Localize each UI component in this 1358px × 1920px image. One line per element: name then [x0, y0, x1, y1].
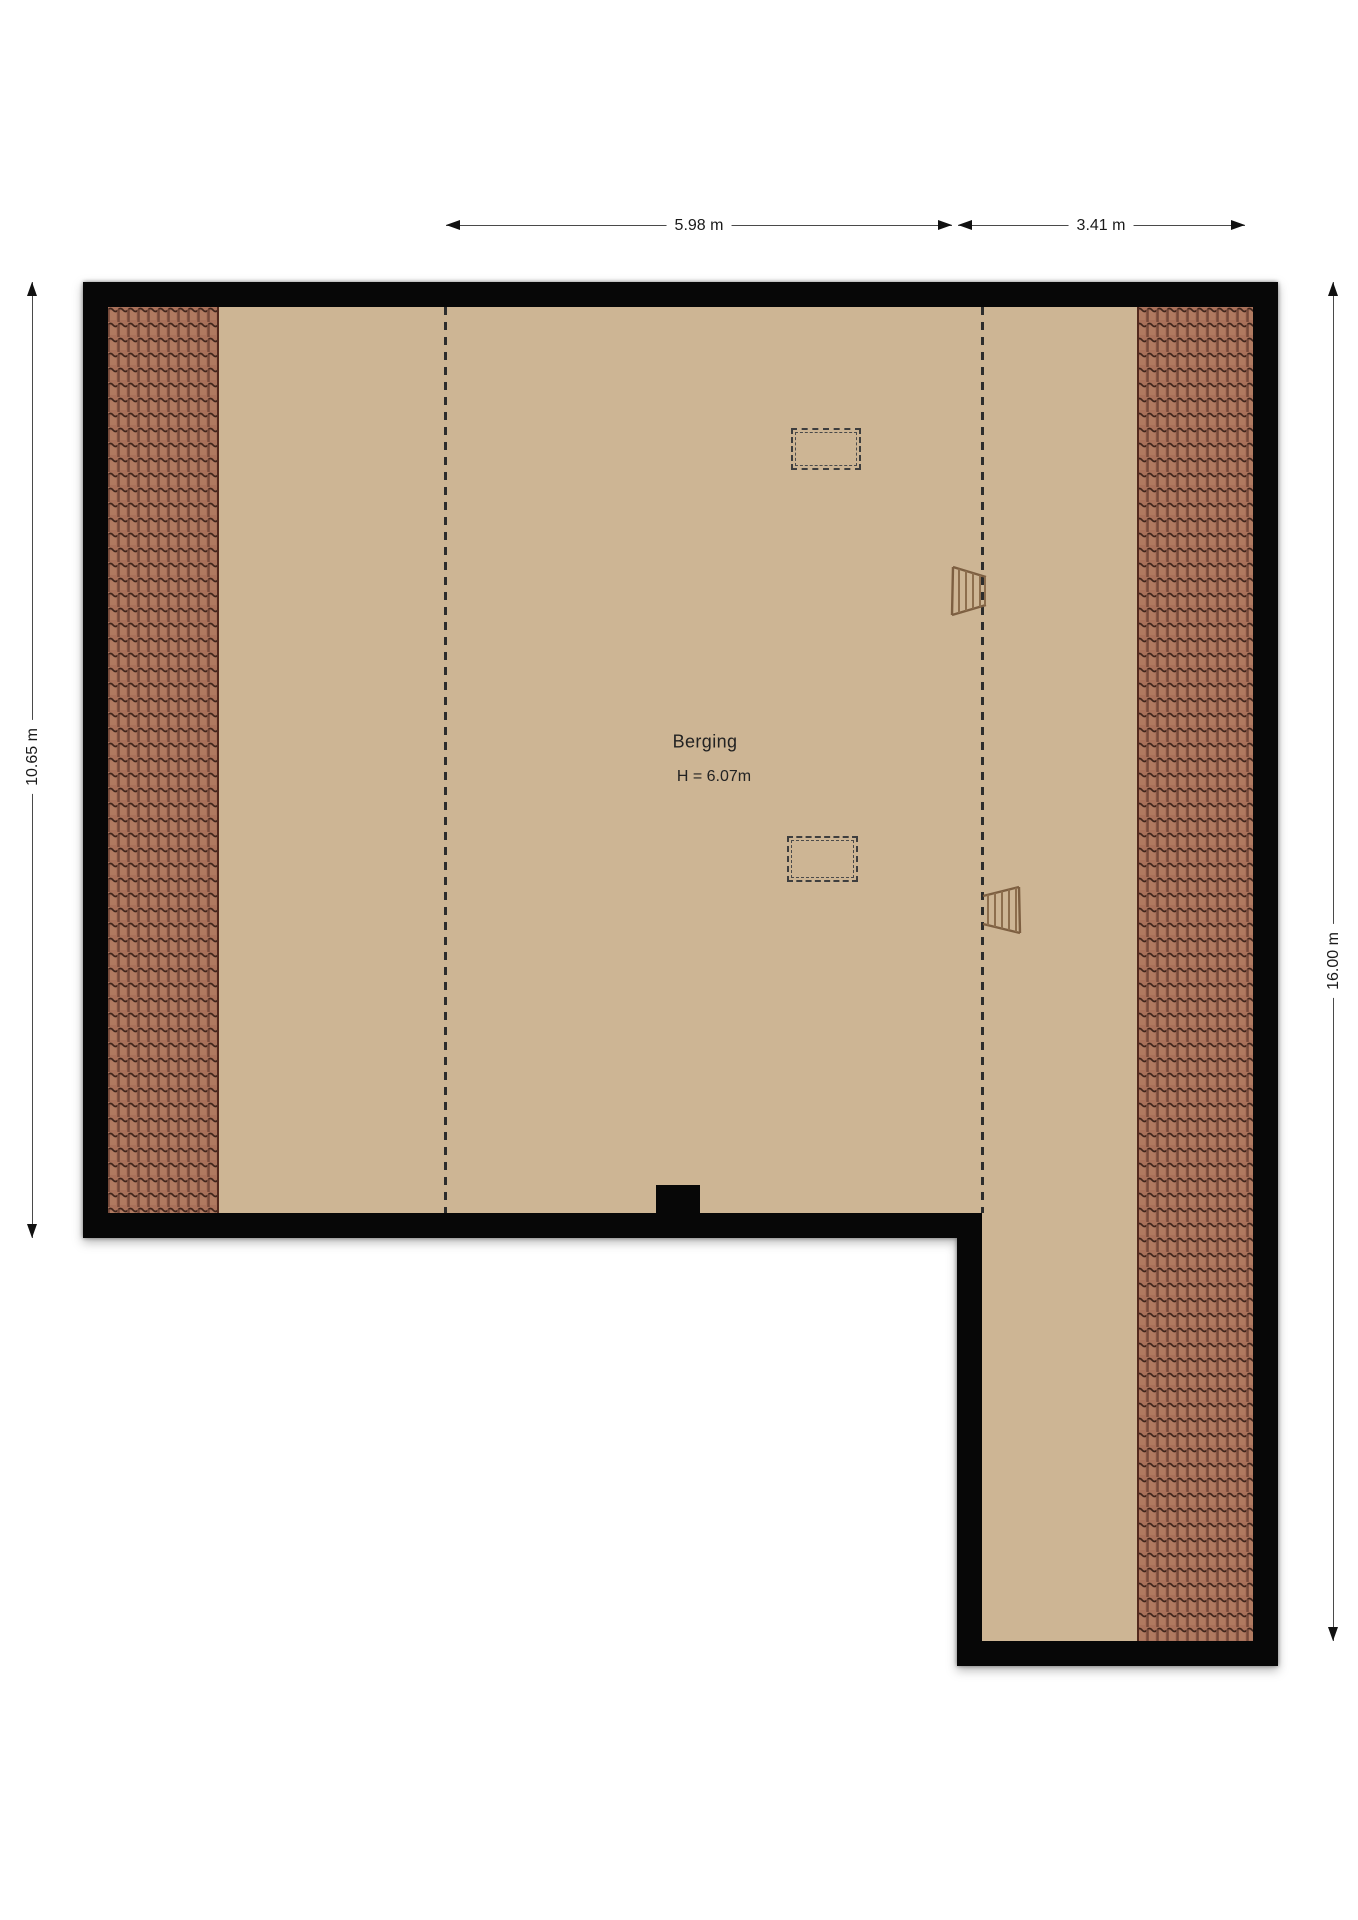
skylight-inner-outline: [791, 840, 854, 878]
skylight-inner-outline: [795, 432, 857, 466]
dimension-top-outer-label: 3.41 m: [1069, 216, 1134, 236]
loft-ladder-icon: [980, 884, 1022, 936]
dimension-right-label: 16.00 m: [1324, 924, 1344, 998]
roof-tiles-right: [1137, 307, 1253, 1641]
loft-ladder-icon: [950, 564, 988, 618]
floor-plan: Berging H = 6.07m 5.98 m 3.41 m 10.65 m …: [0, 0, 1358, 1920]
ridge-line-left: [444, 307, 447, 1213]
dimension-top-inner-label: 5.98 m: [667, 216, 732, 236]
room-ceiling-height-label: H = 6.07m: [677, 768, 751, 786]
wall-protrusion: [656, 1185, 700, 1217]
roof-tiles-left: [108, 307, 219, 1213]
dimension-left-label: 10.65 m: [23, 720, 43, 794]
ridge-line-right: [981, 307, 984, 1213]
skylight-outline: [787, 836, 858, 882]
room-label: Berging: [673, 732, 738, 753]
skylight-outline: [791, 428, 861, 470]
